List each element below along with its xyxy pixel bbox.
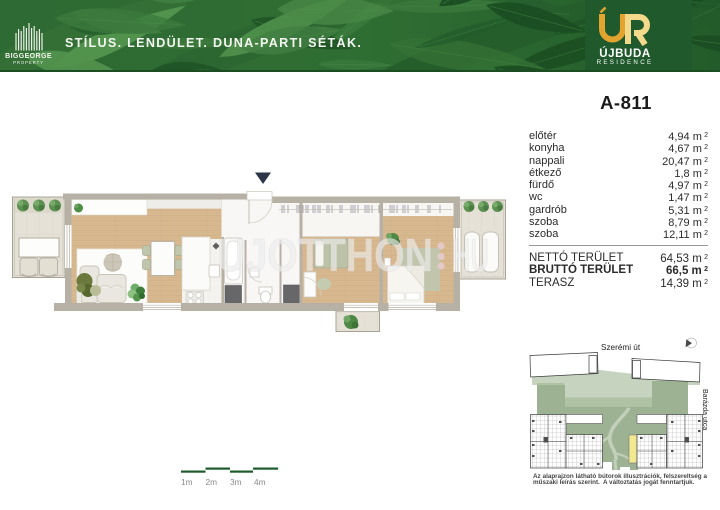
svg-text:BIGGEORGE: BIGGEORGE — [5, 53, 52, 60]
svg-text:3m: 3m — [230, 477, 242, 487]
svg-text:4m: 4m — [254, 477, 266, 487]
svg-text:1m: 1m — [181, 477, 193, 487]
svg-text:PROPERTY: PROPERTY — [13, 60, 44, 65]
svg-text:RESIDENCE: RESIDENCE — [597, 59, 654, 66]
svg-text:2m: 2m — [206, 477, 218, 487]
svg-text:UJOTTHON: UJOTTHON — [217, 229, 433, 281]
svg-text:HU: HU — [452, 229, 489, 281]
